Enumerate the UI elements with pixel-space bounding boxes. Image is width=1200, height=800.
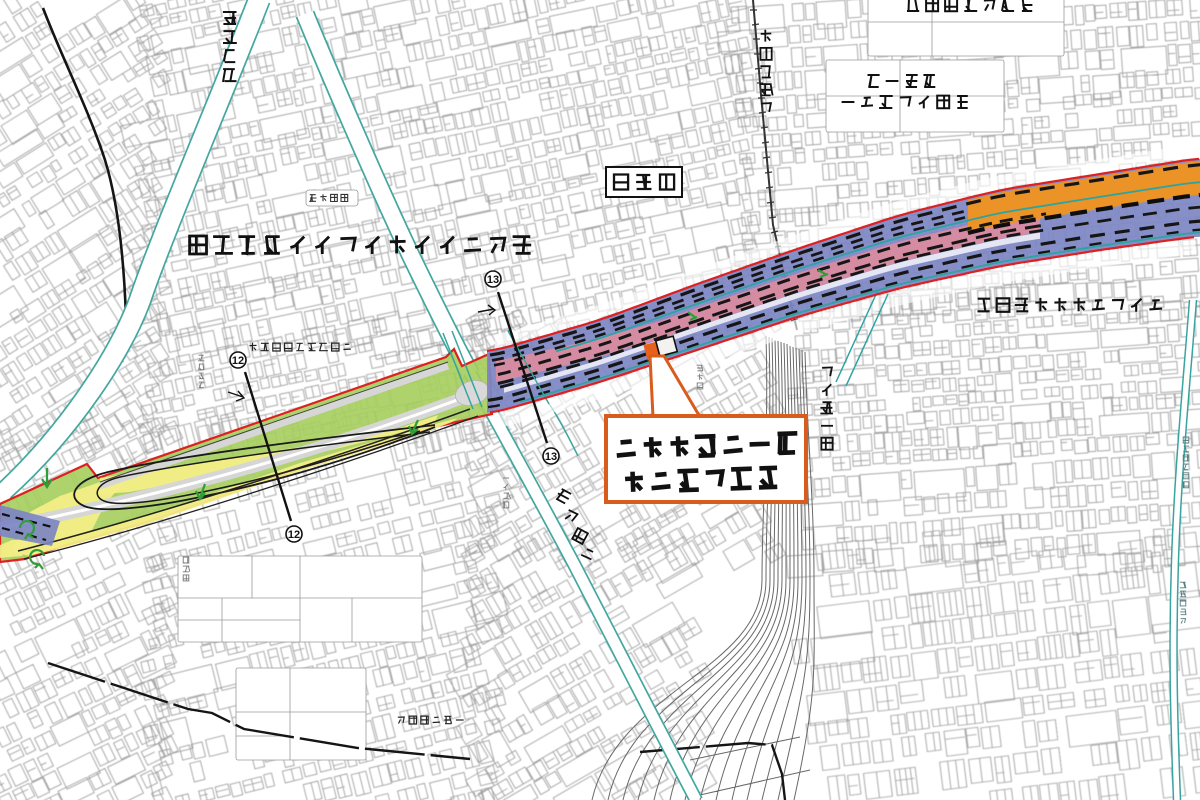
- svg-text:12: 12: [288, 529, 300, 541]
- svg-text:13: 13: [487, 274, 499, 286]
- svg-text:12: 12: [232, 355, 244, 367]
- svg-text:13: 13: [545, 451, 557, 463]
